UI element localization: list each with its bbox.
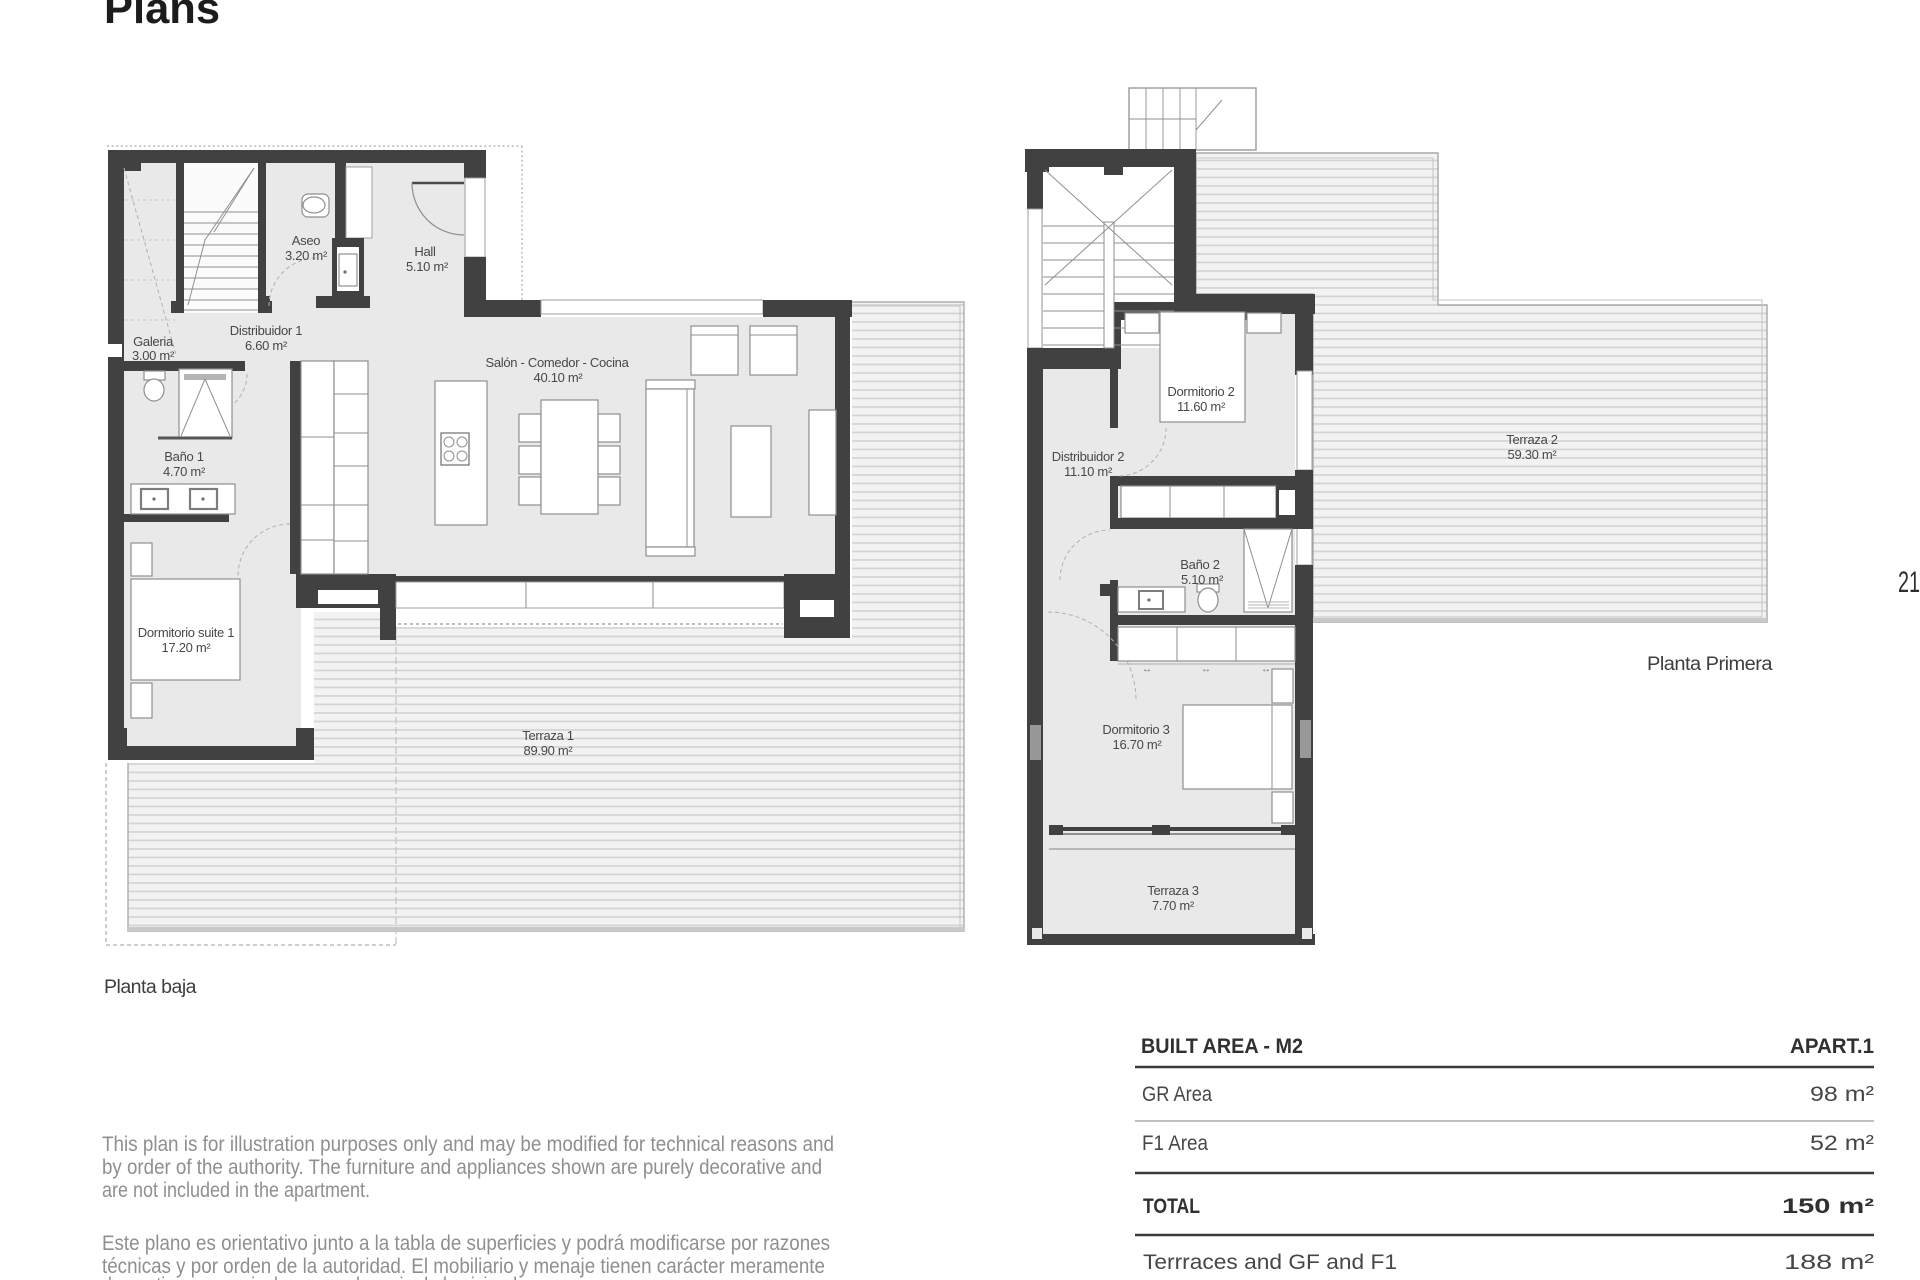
svg-text:Aseo: Aseo <box>292 233 321 248</box>
svg-text:This plan is for illustration: This plan is for illustration purposes o… <box>102 1133 834 1156</box>
svg-text:Terraza 3: Terraza 3 <box>1147 883 1199 898</box>
svg-text:5.10 m²: 5.10 m² <box>406 259 449 274</box>
svg-text:6.60 m²: 6.60 m² <box>245 338 288 353</box>
svg-text:Planta Primera: Planta Primera <box>1647 654 1773 675</box>
svg-text:Baño 2: Baño 2 <box>1180 557 1219 572</box>
svg-text:5.10 m²: 5.10 m² <box>1181 572 1224 587</box>
svg-text:11.10 m²: 11.10 m² <box>1064 464 1113 479</box>
svg-text:98 m²: 98 m² <box>1810 1083 1874 1106</box>
svg-text:3.00 m²: 3.00 m² <box>132 348 175 363</box>
svg-text:Terrraces and GF and F1: Terrraces and GF and F1 <box>1143 1251 1397 1274</box>
svg-text:188 m²: 188 m² <box>1784 1251 1874 1274</box>
svg-text:Dormitorio 3: Dormitorio 3 <box>1102 722 1169 737</box>
svg-text:by order of the authority. The: by order of the authority. The furniture… <box>102 1156 822 1179</box>
svg-text:TOTAL: TOTAL <box>1143 1195 1200 1218</box>
svg-text:Distribuidor 1: Distribuidor 1 <box>230 323 302 338</box>
svg-text:52 m²: 52 m² <box>1810 1132 1874 1155</box>
svg-text:are not included in the apartm: are not included in the apartment. <box>102 1179 370 1202</box>
svg-text:17.20 m²: 17.20 m² <box>162 640 212 655</box>
svg-text:Dormitorio suite 1: Dormitorio suite 1 <box>138 625 235 640</box>
svg-text:Galeria: Galeria <box>133 334 174 349</box>
svg-text:Este plano es orientativo junt: Este plano es orientativo junto a la tab… <box>102 1232 830 1255</box>
svg-text:21: 21 <box>1898 566 1920 599</box>
svg-text:Terraza 1: Terraza 1 <box>522 728 574 743</box>
svg-text:89.90 m²: 89.90 m² <box>524 743 574 758</box>
svg-text:11.60 m²: 11.60 m² <box>1177 399 1226 414</box>
svg-text:150 m²: 150 m² <box>1782 1195 1874 1218</box>
svg-text:4.70 m²: 4.70 m² <box>163 464 206 479</box>
svg-text:40.10 m²: 40.10 m² <box>534 370 584 385</box>
svg-text:Distribuidor 2: Distribuidor 2 <box>1052 449 1124 464</box>
svg-text:7.70 m²: 7.70 m² <box>1152 898 1195 913</box>
svg-text:F1 Area: F1 Area <box>1142 1132 1208 1155</box>
svg-text:↔: ↔ <box>1201 664 1211 675</box>
svg-text:Plans: Plans <box>104 0 220 33</box>
svg-text:GR Area: GR Area <box>1142 1083 1212 1106</box>
svg-text:Planta baja: Planta baja <box>104 977 197 998</box>
svg-text:Salón - Comedor - Cocina: Salón - Comedor - Cocina <box>485 355 629 370</box>
svg-text:↔: ↔ <box>1261 664 1271 675</box>
svg-text:Hall: Hall <box>414 244 436 259</box>
svg-text:Baño 1: Baño 1 <box>164 449 203 464</box>
svg-text:Terraza 2: Terraza 2 <box>1506 432 1558 447</box>
svg-text:Dormitorio 2: Dormitorio 2 <box>1167 384 1234 399</box>
svg-text:↔: ↔ <box>1142 664 1152 675</box>
svg-text:APART.1: APART.1 <box>1790 1035 1874 1058</box>
svg-text:16.70 m²: 16.70 m² <box>1113 737 1163 752</box>
svg-text:59.30 m²: 59.30 m² <box>1508 447 1558 462</box>
svg-text:BUILT AREA - M2: BUILT AREA - M2 <box>1141 1035 1303 1058</box>
svg-text:decorativo y no se incluyen en: decorativo y no se incluyen en el precio… <box>102 1274 532 1280</box>
svg-text:3.20 m²: 3.20 m² <box>285 248 328 263</box>
